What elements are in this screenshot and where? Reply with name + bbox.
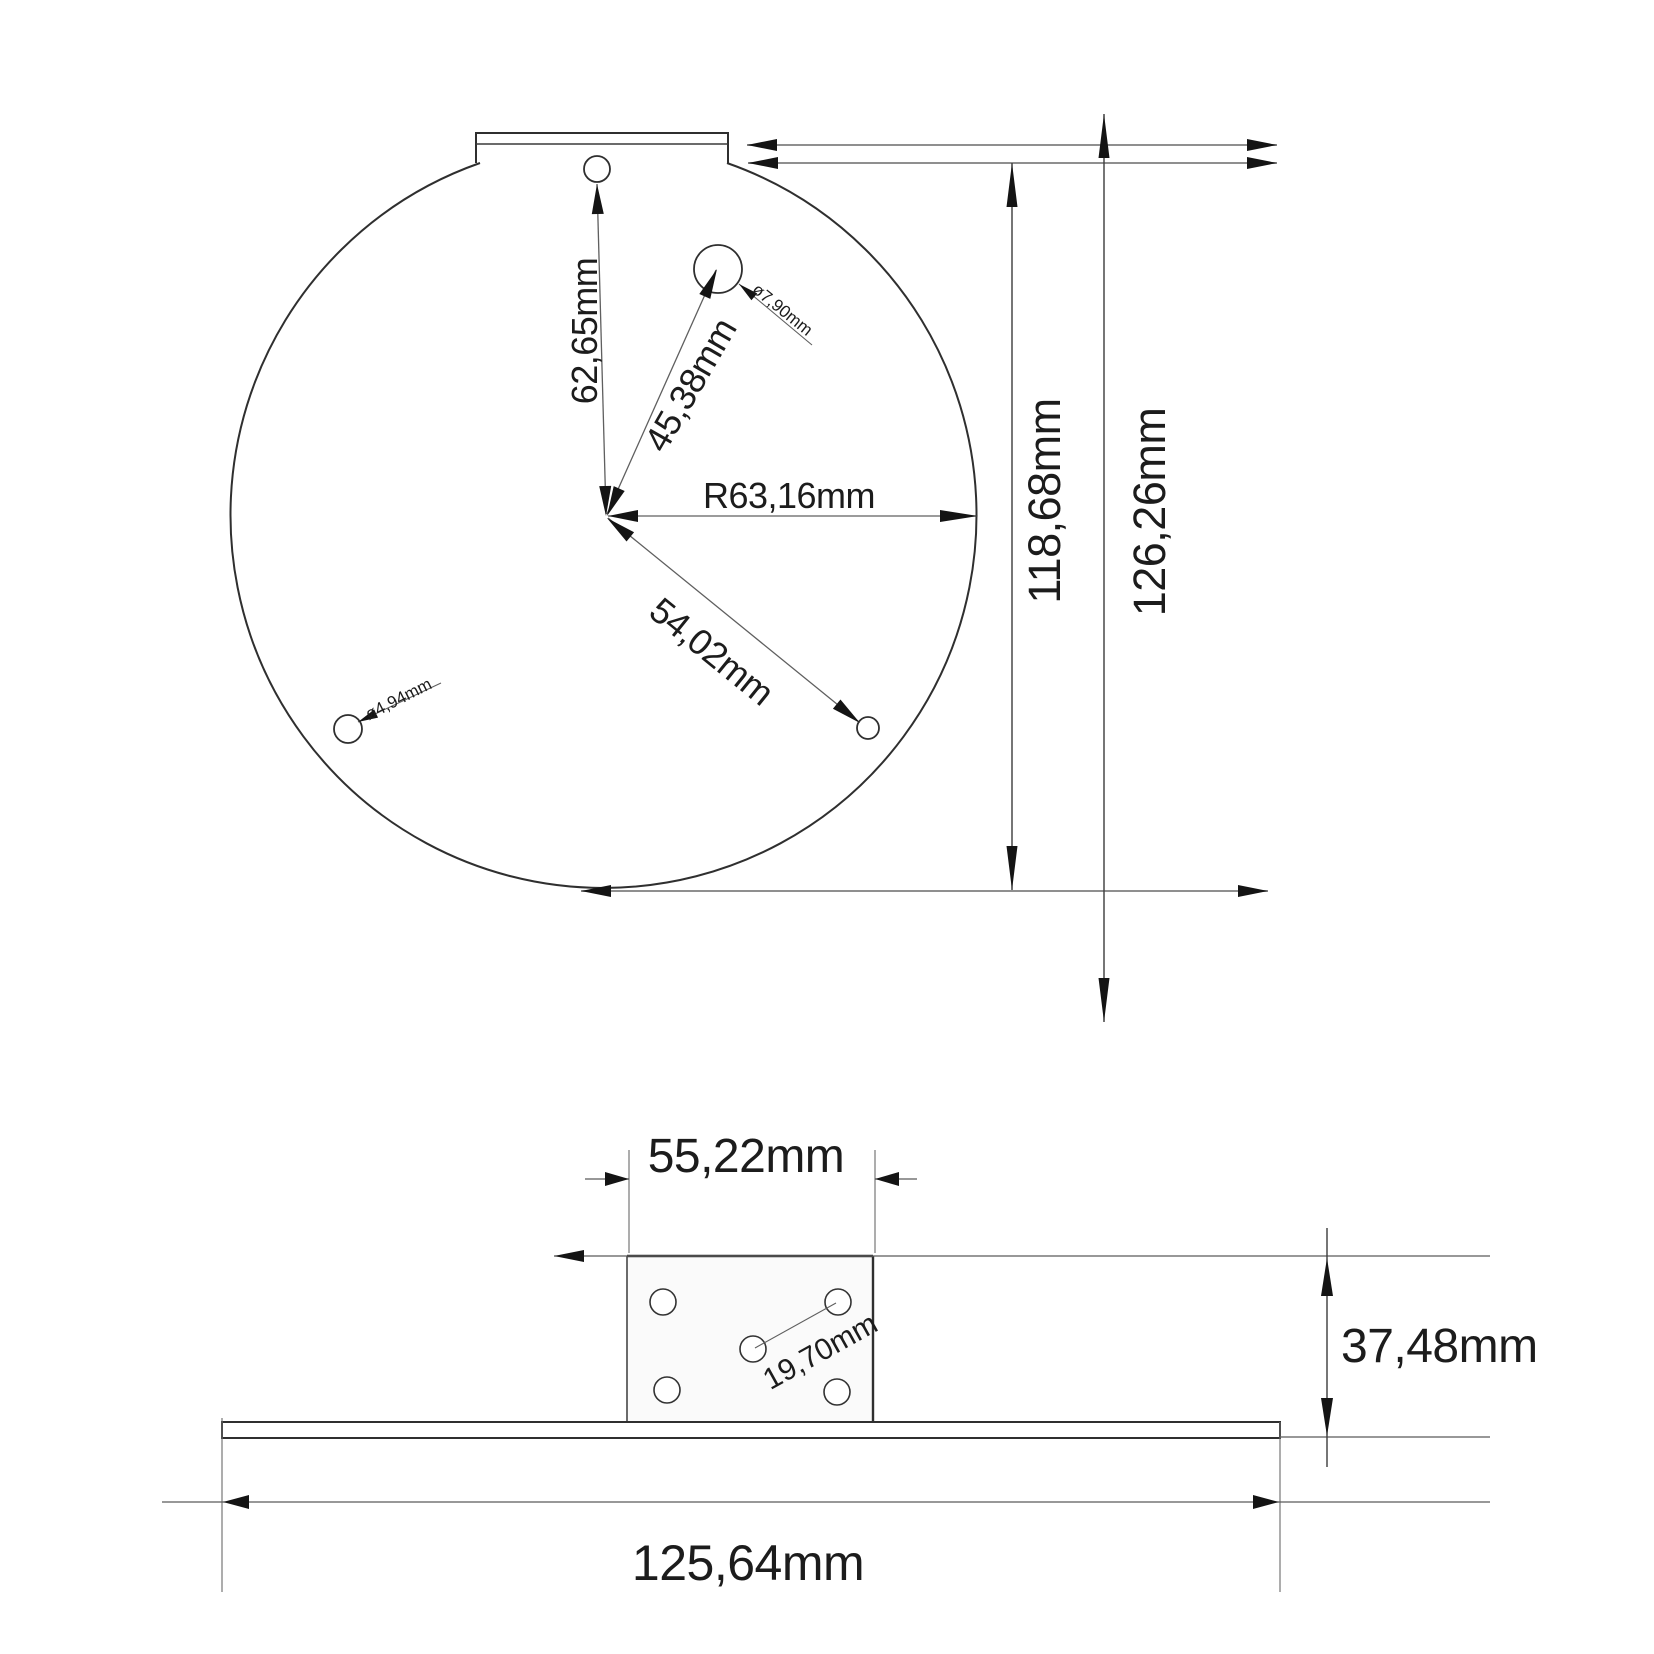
arrowhead — [223, 1495, 249, 1509]
arrowhead — [554, 1250, 584, 1262]
arrowhead — [1238, 885, 1268, 897]
dim-label-62-65: 62,65mm — [564, 258, 605, 405]
technical-drawing-page: 62,65mm 45,38mm R63,16mm 54,02mm ø7,90mm… — [0, 0, 1654, 1654]
large-hole — [694, 245, 742, 293]
arrowhead — [748, 157, 778, 169]
arrowhead — [1321, 1398, 1333, 1436]
top-view-disc: 62,65mm 45,38mm R63,16mm 54,02mm ø7,90mm… — [231, 114, 1278, 1022]
arrowhead — [940, 510, 978, 522]
arrowhead — [875, 1172, 899, 1186]
dim-label-126-26: 126,26mm — [1124, 408, 1175, 617]
arrowhead — [1247, 139, 1277, 151]
arrowhead — [608, 510, 638, 522]
dim-label-dia-7-90: ø7,90mm — [749, 280, 817, 340]
dim-label-dia-4-94: ø4,94mm — [362, 674, 435, 724]
dim-label-45-38: 45,38mm — [636, 311, 745, 458]
arrowhead — [1253, 1495, 1279, 1509]
dim-label-radius: R63,16mm — [703, 475, 875, 516]
arrowhead — [1007, 846, 1018, 890]
top-hole — [584, 156, 610, 182]
small-hole-right — [857, 717, 879, 739]
dim-label-125-64: 125,64mm — [632, 1535, 864, 1591]
block-hole-top-right — [825, 1289, 851, 1315]
dim-label-55-22: 55,22mm — [648, 1130, 845, 1183]
base-plate-outline — [222, 1422, 1280, 1438]
dim-label-37-48: 37,48mm — [1341, 1320, 1538, 1373]
block-hole-center — [740, 1336, 766, 1362]
arrowhead — [1321, 1258, 1333, 1296]
dimension-drawing: 62,65mm 45,38mm R63,16mm 54,02mm ø7,90mm… — [0, 0, 1654, 1654]
dim-label-54-02: 54,02mm — [642, 589, 782, 713]
arrowhead — [591, 184, 604, 214]
arrowhead — [1247, 157, 1277, 169]
arrowhead — [747, 139, 777, 151]
block-hole-bottom-right — [824, 1379, 850, 1405]
arrowhead — [1099, 978, 1110, 1022]
dim-label-118-68: 118,68mm — [1019, 398, 1070, 603]
arrowhead — [605, 1172, 629, 1186]
arrowhead — [1007, 163, 1018, 207]
block-hole-top-left — [650, 1289, 676, 1315]
arrowhead — [1099, 114, 1110, 158]
front-view-bracket: 55,22mm 19,70mm 37,48mm 125,64mm — [162, 1130, 1538, 1592]
block-hole-bottom-left — [654, 1377, 680, 1403]
small-hole-left — [334, 715, 362, 743]
